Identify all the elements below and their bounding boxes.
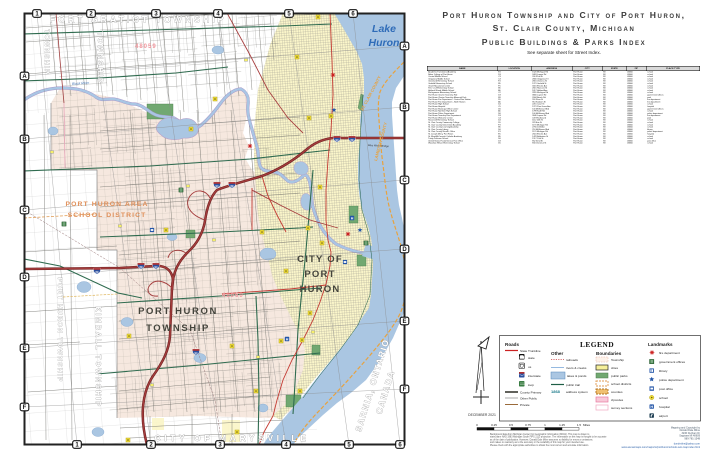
svg-text:Roads: Roads: [505, 342, 519, 347]
svg-text:zipcodes: zipcodes: [611, 398, 624, 402]
svg-text:state: state: [528, 356, 535, 360]
svg-text:loop: loop: [528, 383, 534, 387]
svg-text:survey sections: survey sections: [611, 406, 633, 410]
svg-text:D: D: [402, 247, 407, 253]
svg-text:public trail: public trail: [566, 383, 580, 387]
svg-text:PORT HURON AREA: PORT HURON AREA: [65, 201, 148, 208]
svg-text:0.75: 0.75: [525, 423, 531, 427]
svg-text:us: us: [528, 365, 532, 369]
svg-text:dondmilne@yahoo.com: dondmilne@yahoo.com: [674, 443, 700, 446]
svg-text:0.5: 0.5: [509, 423, 514, 427]
svg-text:lakes & ponds: lakes & ponds: [567, 374, 587, 378]
svg-text:D: D: [22, 275, 27, 281]
svg-text:1: 1: [544, 423, 546, 427]
svg-text:railroads: railroads: [566, 358, 578, 362]
svg-text:TOWNSHIP: TOWNSHIP: [146, 323, 210, 334]
svg-text:H: H: [286, 337, 289, 341]
svg-text:rivers & creeks: rivers & creeks: [566, 366, 587, 370]
svg-text:F: F: [403, 387, 407, 393]
svg-text:F: F: [23, 405, 27, 411]
svg-text:Boundaries: Boundaries: [596, 351, 622, 356]
svg-text:PORT HURON: PORT HURON: [138, 306, 218, 317]
svg-text:Township: Township: [611, 358, 624, 362]
svg-text:HURON: HURON: [300, 284, 341, 295]
svg-text:DECEMBER 2021: DECEMBER 2021: [468, 413, 496, 417]
svg-text:1.25: 1.25: [559, 423, 565, 427]
svg-text:and makes no warranty as to th: and makes no warranty as to the accuracy…: [490, 441, 585, 444]
svg-text:B: B: [22, 137, 27, 143]
svg-text:A: A: [22, 74, 27, 80]
svg-text:Lake: Lake: [372, 23, 396, 35]
svg-text:1.5: 1.5: [577, 423, 582, 427]
svg-text:989-781-1548: 989-781-1548: [684, 437, 700, 440]
svg-text:public parks: public parks: [611, 374, 628, 378]
svg-text:A: A: [402, 44, 407, 50]
svg-text:counties: counties: [611, 390, 623, 394]
svg-text:County Primary: County Primary: [520, 391, 542, 395]
svg-text:PORT HURON TOWNSHIP: PORT HURON TOWNSHIP: [56, 277, 63, 382]
svg-text:Other: Other: [551, 351, 563, 356]
svg-text:government offices: government offices: [659, 360, 686, 364]
svg-text:CITY OF: CITY OF: [297, 254, 343, 265]
svg-text:hospital: hospital: [659, 405, 670, 409]
svg-text:Huron: Huron: [369, 37, 400, 49]
svg-text:cities: cities: [611, 366, 619, 370]
svg-text:www.arenacmaps.com/maps/mi/por: www.arenacmaps.com/maps/mi/porthuron/sch…: [621, 446, 700, 449]
svg-text:48059: 48059: [135, 44, 157, 50]
svg-text:Private: Private: [520, 403, 530, 407]
svg-text:Miles: Miles: [583, 423, 591, 427]
svg-text:0: 0: [476, 423, 478, 427]
svg-text:airport: airport: [659, 414, 668, 418]
svg-text:interstate: interstate: [528, 374, 541, 378]
svg-text:fire department: fire department: [659, 351, 680, 355]
svg-text:C: C: [22, 208, 27, 214]
svg-text:PORT: PORT: [304, 269, 335, 280]
svg-text:Background data from Michigan: Background data from Michigan Center For…: [490, 433, 590, 436]
svg-text:B: B: [402, 105, 407, 111]
svg-text:E: E: [402, 319, 406, 325]
svg-text:Please check with the appropri: Please check with the appropriate author…: [490, 444, 589, 447]
svg-text:post office: post office: [659, 387, 673, 391]
svg-text:FORT GRATIOT TOWNSHIP: FORT GRATIOT TOWNSHIP: [50, 15, 226, 25]
svg-text:48060: 48060: [222, 293, 244, 299]
svg-text:C: C: [402, 178, 407, 184]
svg-text:Landmarks: Landmarks: [648, 342, 673, 347]
svg-text:0.25: 0.25: [491, 423, 497, 427]
svg-text:State Trunkline: State Trunkline: [520, 349, 541, 353]
svg-text:SCHOOL DISTRICT: SCHOOL DISTRICT: [68, 212, 147, 219]
svg-text:KIMBALL TOWNSHIP: KIMBALL TOWNSHIP: [94, 306, 103, 408]
svg-text:1868: 1868: [551, 389, 561, 394]
svg-text:Other Public: Other Public: [520, 397, 537, 401]
svg-text:H: H: [351, 216, 354, 220]
svg-text:state plane NAD 1983 Michigan: state plane NAD 1983 Michigan South FIPS…: [490, 436, 607, 439]
svg-text:E: E: [22, 346, 26, 352]
svg-text:school: school: [659, 396, 668, 400]
svg-text:school districts: school districts: [611, 382, 632, 386]
svg-text:TOWNSHIP: TOWNSHIP: [43, 29, 50, 74]
svg-text:library: library: [659, 369, 668, 373]
svg-text:address system: address system: [566, 390, 588, 394]
svg-text:LEGEND: LEGEND: [580, 340, 614, 349]
svg-text:H: H: [650, 405, 653, 409]
svg-text:police department: police department: [659, 378, 684, 382]
svg-text:TOWNSHIP: TOWNSHIP: [96, 31, 105, 84]
svg-text:as of the date of publication.: as of the date of publication. However, …: [490, 438, 593, 441]
